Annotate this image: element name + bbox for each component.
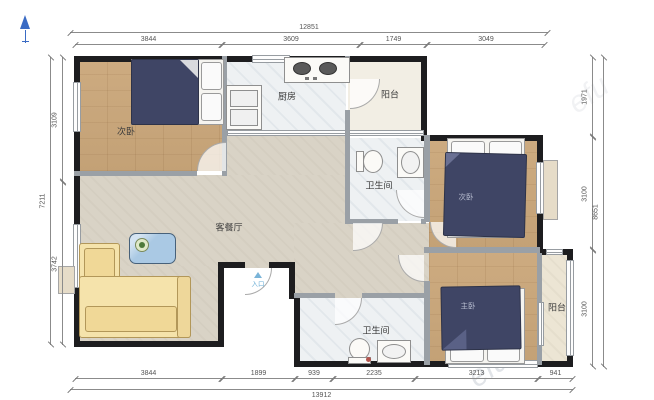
dimension-bottom-5: 3213 [415, 378, 538, 379]
kitchen-sink-basin [230, 90, 258, 107]
dimension-bottom-6: 941 [538, 378, 573, 379]
dimension-top-3: 1749 [360, 44, 427, 45]
wall [424, 247, 540, 253]
wall [74, 56, 427, 62]
room-label-balcony-top: 阳台 [381, 88, 399, 101]
window [73, 82, 81, 132]
dimension-top-total: 12851 [70, 32, 548, 33]
entrance-label: 入口 [252, 278, 265, 288]
room-label-bathroom-bottom: 卫生间 [362, 324, 389, 337]
floor-plan-page: { "rooms": { "bedroom_a": "次卧", "kitchen… [0, 0, 654, 400]
blanket-fold [442, 329, 466, 349]
window [566, 260, 574, 356]
wall [362, 293, 427, 298]
ac-platform [543, 160, 558, 220]
room-label-living: 客餐厅 [215, 221, 242, 234]
dimension-top-1: 3844 [75, 44, 222, 45]
stove-knob [305, 77, 309, 80]
dimension-bottom-4: 2235 [333, 378, 415, 379]
wall [294, 293, 300, 363]
dimension-right-2: 3100 [592, 137, 593, 250]
bed-blanket [440, 285, 521, 350]
dimension-top-4: 3049 [427, 44, 545, 45]
compass-tick [22, 41, 29, 42]
stove-burner [319, 62, 337, 75]
pillow [201, 93, 222, 121]
sink-basin [401, 151, 420, 174]
window [538, 302, 544, 346]
dimension-left-total: 7211 [50, 57, 51, 345]
room-label-kitchen: 厨房 [278, 90, 296, 103]
stove-knob [313, 77, 317, 80]
sink-basin [382, 344, 406, 359]
wall [74, 171, 197, 176]
wall [269, 262, 295, 268]
ac-platform [58, 266, 75, 294]
room-living-dining [225, 133, 348, 177]
bed-blanket [131, 59, 199, 125]
wall [218, 262, 224, 347]
blanket-fold [446, 153, 460, 167]
sofa-cushion [85, 306, 177, 332]
room-label-balcony-bottom: 阳台 [548, 301, 566, 314]
sofa-armrest [177, 276, 191, 338]
kitchen-sink-basin [230, 109, 258, 126]
dimension-right-1: 1971 [592, 57, 593, 137]
wall [421, 56, 427, 141]
window [349, 130, 424, 136]
window [546, 249, 563, 255]
bathroom-accessory [366, 357, 371, 362]
wall [424, 135, 430, 222]
compass-arrow-icon [20, 15, 30, 29]
plant-leaf [139, 242, 145, 248]
wall [294, 293, 335, 298]
room-label-bathroom-top: 卫生间 [365, 179, 392, 192]
room-label-bedroom-master: 主卧 [461, 301, 476, 312]
room-label-bedroom-right: 次卧 [459, 192, 474, 203]
wall [74, 341, 224, 347]
dimension-bottom-3: 939 [295, 378, 333, 379]
dimension-left-2: 3742 [62, 182, 63, 345]
watermark: efu [562, 69, 616, 121]
blanket-fold [180, 60, 198, 78]
dimension-right-total: 8651 [603, 57, 604, 367]
room-label-bedroom-top: 次卧 [117, 125, 135, 138]
dimension-bottom-2: 1899 [222, 378, 295, 379]
wall [345, 135, 350, 223]
stove-burner [293, 62, 311, 75]
dimension-left-1: 3109 [62, 57, 63, 182]
dimension-bottom-total: 13912 [70, 389, 573, 390]
dimension-right-3: 3100 [592, 250, 593, 367]
toilet [363, 150, 383, 173]
pillow [201, 62, 222, 90]
bed-blanket [443, 152, 527, 238]
dimension-bottom-1: 3844 [75, 378, 222, 379]
sliding-door [227, 130, 346, 136]
dimension-top-2: 3609 [222, 44, 360, 45]
